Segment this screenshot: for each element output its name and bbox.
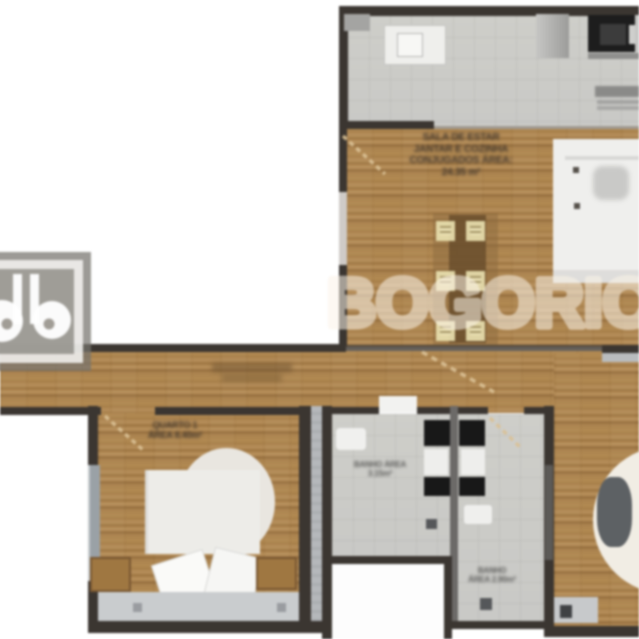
svg-text:BOGORICIN: BOGORICIN [327, 265, 639, 341]
